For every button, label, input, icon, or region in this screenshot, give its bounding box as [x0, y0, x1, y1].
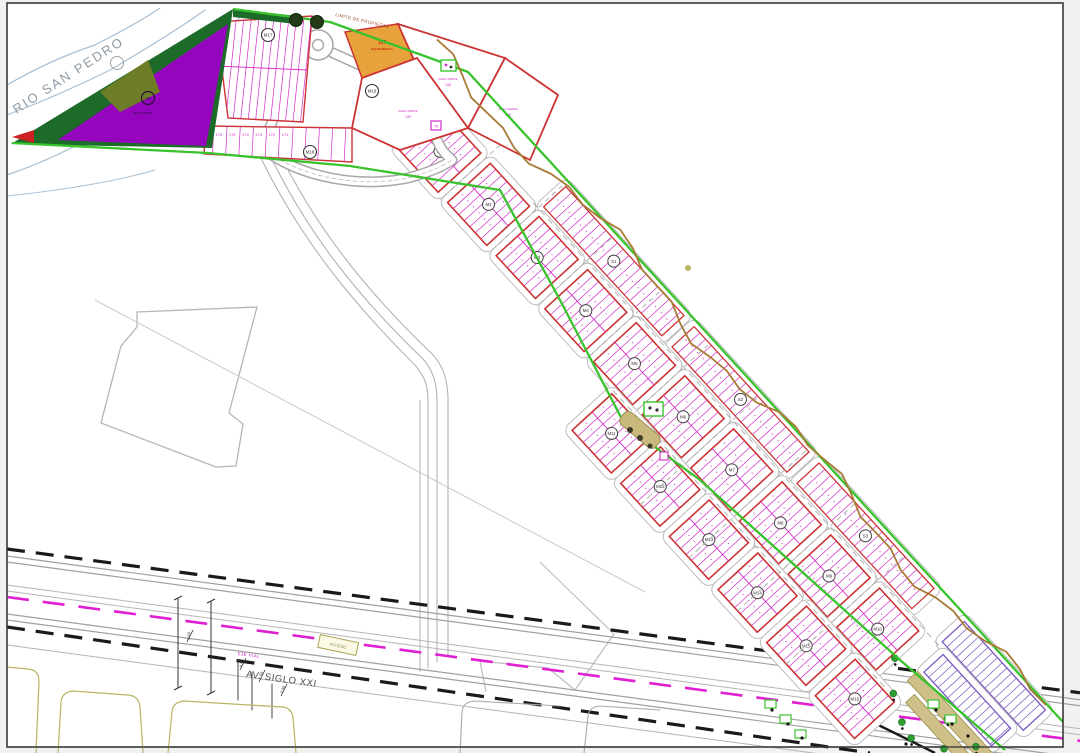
svg-text:M8: M8	[777, 521, 784, 526]
svg-text:M19: M19	[368, 89, 377, 94]
svg-text:172: 172	[268, 132, 275, 137]
svg-text:EQUIPAMIENTO: EQUIPAMIENTO	[371, 47, 393, 51]
svg-text:M5: M5	[631, 361, 638, 366]
svg-text:149: 149	[405, 115, 411, 119]
svg-text:148: 148	[445, 83, 451, 87]
svg-text:AREA VERDE: AREA VERDE	[398, 109, 417, 113]
site-plan-screenshot: 2.504.001.503.00S1S2S3M1M2M3M4M5M6M7M8M9…	[0, 0, 1080, 753]
svg-text:174: 174	[242, 132, 249, 137]
svg-text:M9: M9	[826, 574, 833, 579]
svg-text:M10: M10	[873, 627, 882, 632]
svg-text:173: 173	[255, 132, 262, 137]
svg-text:176: 176	[216, 132, 223, 137]
svg-text:M18: M18	[306, 150, 315, 155]
svg-text:S3: S3	[863, 533, 869, 538]
svg-text:AREA VERDE: AREA VERDE	[133, 111, 152, 115]
svg-text:S1: S1	[611, 259, 617, 264]
site-plan-canvas: 2.504.001.503.00S1S2S3M1M2M3M4M5M6M7M8M9…	[0, 0, 1080, 753]
svg-text:175: 175	[229, 132, 236, 137]
svg-text:76: 76	[434, 124, 439, 129]
svg-text:AV: AV	[145, 96, 151, 101]
svg-text:M4: M4	[583, 308, 590, 313]
svg-text:M17: M17	[264, 33, 273, 38]
svg-text:M7: M7	[729, 467, 736, 472]
svg-text:M6: M6	[680, 414, 687, 419]
plan-svg: 2.504.001.503.00S1S2S3M1M2M3M4M5M6M7M8M9…	[0, 0, 1080, 753]
svg-text:M2: M2	[485, 202, 492, 207]
svg-text:M16: M16	[851, 696, 860, 701]
svg-text:S2: S2	[738, 397, 744, 402]
svg-text:AREA VERDE: AREA VERDE	[438, 77, 457, 81]
svg-text:M11: M11	[607, 431, 616, 436]
svg-text:171: 171	[282, 132, 289, 137]
